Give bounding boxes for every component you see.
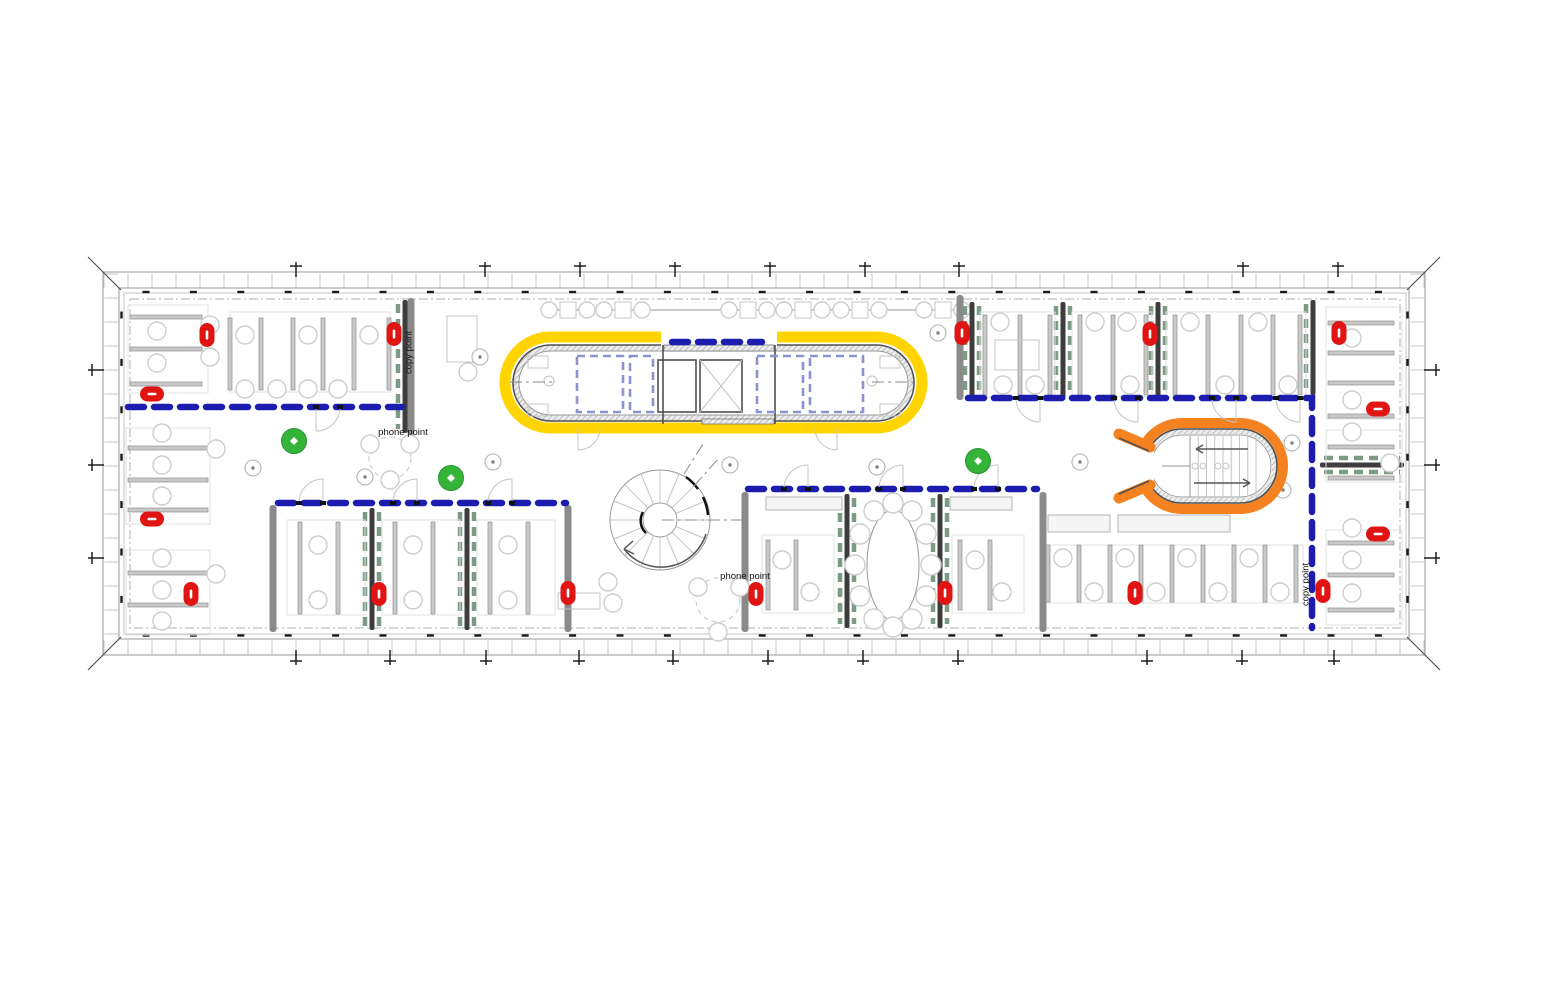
mullion-tick [120,549,122,556]
chair [207,565,225,583]
mullion-tick [1328,634,1335,636]
chair [1026,376,1044,394]
chair [721,302,737,318]
plan-shape [1215,463,1221,469]
fire-point-marker [1134,589,1137,598]
chair [579,302,595,318]
desk-divider [1232,545,1236,602]
mullion-tick [120,406,122,413]
mullion-tick [1185,634,1192,636]
mullion-tick [1043,291,1050,293]
chair [596,302,612,318]
chair [360,326,378,344]
cabinet [1118,515,1230,532]
wall-end-bar [957,295,964,400]
desk-strip [1328,608,1394,612]
door-jamb [485,501,491,505]
mullion-tick [285,291,292,293]
mullion-tick [522,634,529,636]
desk-divider [431,522,435,614]
column-symbol [1290,441,1293,444]
door-swing [488,479,512,503]
mullion-tick [1185,291,1192,293]
column-symbol [491,460,494,463]
chair [309,591,327,609]
desk-divider [1206,315,1210,395]
chair [236,380,254,398]
door-jamb [1233,396,1239,400]
stair-spoke [641,474,654,504]
fire-point-marker [190,590,193,599]
desk-divider [1048,315,1052,395]
chair [921,555,941,575]
chair [966,551,984,569]
mullion-tick [901,634,908,636]
chair [709,623,727,641]
floor-plan-svg [0,0,1549,1000]
door-jamb [1297,396,1303,400]
plan-shape [684,444,703,474]
lobby-wall [664,345,774,351]
mullion-tick [237,291,244,293]
mullion-tick [237,634,244,636]
mullion-tick [1406,549,1408,556]
mullion-tick [522,291,529,293]
door-jamb [1013,396,1019,400]
mullion-tick [380,291,387,293]
desk-strip [1328,541,1394,545]
door-jamb [296,501,302,505]
spiral-direction-arrow [624,534,706,567]
chair [1209,583,1227,601]
desk-divider [1108,545,1112,602]
door-swing [1016,398,1040,422]
door-jamb [995,487,1001,491]
desk-strip [1328,381,1394,385]
desk-divider [1170,545,1174,602]
mullion-tick [617,634,624,636]
chair [459,363,477,381]
plan-shape [1192,463,1198,469]
mullion-tick [854,634,861,636]
touchdown-table [740,302,756,318]
door-swing [316,407,340,431]
mullion-tick [617,291,624,293]
chair [801,583,819,601]
desk-divider [298,522,302,614]
mullion-tick [806,634,813,636]
wc-basin [544,376,554,386]
desk-strip [128,571,208,575]
desk-divider [958,540,962,610]
wall-end-bar [270,505,277,632]
mullion-tick [474,634,481,636]
door-jamb [900,487,906,491]
mullion-tick [854,291,861,293]
phone-point-label: phone point [358,427,448,438]
copy-point-label: copy point [1301,557,1312,613]
chair [1181,313,1199,331]
fire-point-marker [206,331,209,340]
chair [236,326,254,344]
mullion-tick [1280,291,1287,293]
mullion-tick [1138,291,1145,293]
chair [299,380,317,398]
mullion-tick [1233,291,1240,293]
chair [604,594,622,612]
chair [902,609,922,629]
desk-divider [983,315,987,395]
chair [1381,454,1399,472]
chair [599,573,617,591]
wall-end-bar [1040,492,1047,632]
fire-point-marker [961,329,964,338]
desk-divider [1111,315,1115,395]
chair [845,555,865,575]
desk-strip [128,446,208,450]
mullion-tick [1406,359,1408,366]
wc-cubicle [757,356,803,412]
door-swing [784,465,808,489]
chair [871,302,887,318]
chair [207,440,225,458]
desk-divider [526,522,530,614]
stair-spoke [625,485,648,508]
phone-point-label: phone point [700,571,790,582]
mullion-tick [569,291,576,293]
door-swing [299,479,323,503]
chair [1054,549,1072,567]
chair [153,612,171,630]
chair [153,456,171,474]
mullion-tick [759,634,766,636]
desk-divider [1239,315,1243,395]
cabinet [1048,515,1110,532]
cabinet [766,497,842,510]
desk-strip [130,382,202,386]
mullion-tick [1406,406,1408,413]
chair [1343,391,1361,409]
desk-divider [1201,545,1205,602]
fire-point-marker [1322,587,1325,596]
door-swing [1114,398,1138,422]
column-symbol [728,463,731,466]
mullion-tick [1043,634,1050,636]
mullion-tick [120,596,122,603]
stair-spoke [641,536,654,566]
chair [759,302,775,318]
door-jamb [1273,396,1279,400]
chair [1118,313,1136,331]
desk-divider [1173,315,1177,395]
chair [329,380,347,398]
fire-point-marker [1374,408,1383,411]
chair [991,313,1009,331]
desk-divider [393,522,397,614]
desk-divider [1263,545,1267,602]
desk-strip [130,347,202,351]
chair [864,501,884,521]
chair [814,302,830,318]
chair [309,536,327,554]
partition-wall [970,302,975,400]
fire-point-marker [944,589,947,598]
chair [1178,549,1196,567]
door-jamb [805,487,811,491]
touchdown-table [852,302,868,318]
chair [1240,549,1258,567]
door-jamb [1037,396,1043,400]
touchdown-table [935,302,951,318]
chair [1086,313,1104,331]
mullion-tick [664,291,671,293]
touchdown-table [615,302,631,318]
mullion-tick [948,634,955,636]
chair [1147,583,1165,601]
meeting-oval-table [867,510,919,620]
copy-point-label: copy point [404,325,415,381]
door-jamb [971,487,977,491]
desk-divider [794,540,798,610]
door-jamb [781,487,787,491]
fire-point-marker [378,590,381,599]
mullion-tick [569,634,576,636]
chair [883,617,903,637]
mullion-tick [427,291,434,293]
partition-wall [1061,302,1066,400]
mullion-tick [1406,501,1408,508]
mullion-tick [1280,634,1287,636]
chair [153,424,171,442]
desk-strip [128,508,208,512]
fire-point-marker [148,518,157,521]
desk-divider [336,522,340,614]
chair [148,354,166,372]
partition-wall [465,508,470,630]
chair [1249,313,1267,331]
mullion-tick [1091,634,1098,636]
chair [1343,551,1361,569]
chair [776,302,792,318]
desk-divider [988,540,992,610]
mullion-tick [332,634,339,636]
stair-spoke [614,527,644,540]
mullion-tick [1406,312,1408,319]
desk-divider [1298,315,1302,395]
mullion-tick [332,291,339,293]
desk-strip [1328,573,1394,577]
plan-shape [1200,463,1206,469]
chair [299,326,317,344]
wall-end-bar [742,492,749,632]
chair [864,609,884,629]
desk-divider [1046,545,1050,602]
chair [634,302,650,318]
chair [1121,376,1139,394]
door-jamb [414,501,420,505]
chair [916,302,932,318]
door-swing [1276,398,1300,422]
fire-point-marker [1374,533,1383,536]
fire-point-marker [755,590,758,599]
stair-spoke [676,527,706,540]
mullion-tick [1091,291,1098,293]
stair-spoke [614,501,644,514]
mullion-tick [120,312,122,319]
mullion-tick [948,291,955,293]
mullion-tick [427,634,434,636]
core-wall-hatch [516,348,911,418]
mullion-tick [120,454,122,461]
chair [773,551,791,569]
chair [916,586,936,606]
chair [153,581,171,599]
mullion-tick [1233,634,1240,636]
mullion-tick [711,291,718,293]
desk-divider [291,318,295,390]
stair-spoke [676,501,706,514]
desk-divider [1294,545,1298,602]
chair [1085,583,1103,601]
touchdown-table [795,302,811,318]
door-jamb [1135,396,1141,400]
mullion-tick [996,291,1003,293]
door-jamb [1111,396,1117,400]
stair-mouth [1128,447,1154,485]
chair [916,524,936,544]
wc-cubicle [630,356,653,412]
chair [1343,519,1361,537]
floor-plan: copy point phone point phone point copy … [0,0,1549,1000]
desk-divider [352,318,356,390]
stair-spoke [672,532,695,555]
chair [153,487,171,505]
door-jamb [313,405,319,409]
desk-strip [1328,476,1394,480]
mullion-tick [120,501,122,508]
fire-point-marker [567,589,570,598]
chair [268,380,286,398]
desk-divider [488,522,492,614]
mullion-tick [190,291,197,293]
chair [148,322,166,340]
chair [1343,584,1361,602]
chair [404,591,422,609]
wall-end-bar [565,505,572,632]
mullion-tick [759,291,766,293]
door-jamb [876,487,882,491]
desk-strip [1328,351,1394,355]
chair [153,549,171,567]
mullion-tick [380,634,387,636]
chair [499,591,517,609]
chair [201,348,219,366]
desk-divider [1078,315,1082,395]
chair [993,583,1011,601]
column-symbol [1078,460,1081,463]
column-symbol [478,355,481,358]
plan-shape [703,497,708,515]
door-jamb [320,501,326,505]
chair [1271,583,1289,601]
desk-divider [1077,545,1081,602]
chair [1116,549,1134,567]
desk-strip [130,315,202,319]
mullion-tick [143,291,150,293]
chair [1343,423,1361,441]
chair [404,536,422,554]
cabinet [950,497,1012,510]
fire-point-marker [148,393,157,396]
column-symbol [363,475,366,478]
stair-spoke [672,485,695,508]
mullion-tick [1375,634,1382,636]
mullion-tick [1406,454,1408,461]
mullion-tick [120,359,122,366]
stair-spoke [667,536,680,566]
door-jamb [390,501,396,505]
chair [833,302,849,318]
wc-cubicle [810,356,863,412]
mullion-tick [474,291,481,293]
partition-wall [370,508,375,630]
chair [381,471,399,489]
partition-wall [1156,302,1161,400]
chair [541,302,557,318]
chair [902,501,922,521]
chair [883,493,903,513]
fire-point-marker [1149,330,1152,339]
desk-divider [321,318,325,390]
door-jamb [337,405,343,409]
wc-cubicle [577,356,623,412]
partition-wall [1311,300,1316,395]
fire-point-marker [393,330,396,339]
column-symbol [251,466,254,469]
chair [850,586,870,606]
chair [850,524,870,544]
mullion-tick [1328,291,1335,293]
desk-divider [1018,315,1022,395]
chair [1279,376,1297,394]
mullion-tick [996,634,1003,636]
mullion-tick [285,634,292,636]
chair [1216,376,1234,394]
mullion-tick [664,634,671,636]
desk-divider [1271,315,1275,395]
mullion-tick [1375,291,1382,293]
plan-shape [694,458,719,486]
mullion-tick [901,291,908,293]
touchdown-table [560,302,576,318]
chair [499,536,517,554]
lobby-wall [702,419,774,424]
desk-divider [259,318,263,390]
desk-strip [1328,445,1394,449]
door-jamb [509,501,515,505]
mullion-tick [1138,634,1145,636]
desk-divider [228,318,232,390]
mullion-tick [806,291,813,293]
meeting-table [995,340,1039,370]
mullion-tick [1406,596,1408,603]
column-symbol [875,465,878,468]
fire-point-marker [1338,329,1341,338]
chair [994,376,1012,394]
door-jamb [1209,396,1215,400]
plan-shape [1223,463,1229,469]
stair-spoke [667,474,680,504]
